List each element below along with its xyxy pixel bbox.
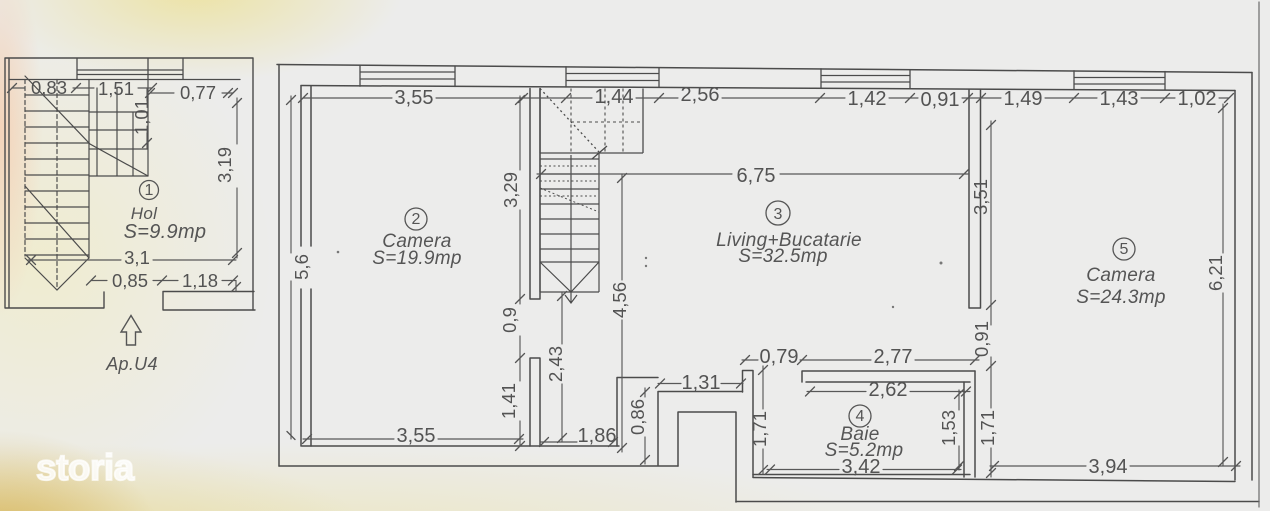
svg-text:1,71: 1,71 [749, 411, 770, 447]
svg-text:1,18: 1,18 [182, 270, 218, 291]
svg-text:3,94: 3,94 [1089, 456, 1128, 478]
svg-text:0,79: 0,79 [760, 346, 799, 368]
svg-text:S=24.3mp: S=24.3mp [1076, 287, 1166, 308]
svg-text:0,91: 0,91 [971, 321, 992, 357]
svg-text:Ap.U4: Ap.U4 [105, 354, 158, 374]
svg-text:2,43: 2,43 [545, 346, 566, 382]
svg-text:3,55: 3,55 [395, 87, 434, 109]
svg-text:0,85: 0,85 [112, 270, 148, 291]
svg-text:1,49: 1,49 [1004, 88, 1043, 110]
svg-text:1,43: 1,43 [1100, 88, 1139, 110]
svg-text:S=19.9mp: S=19.9mp [372, 248, 462, 269]
svg-text:5,6: 5,6 [291, 254, 312, 280]
svg-text:0,83: 0,83 [31, 77, 67, 98]
svg-text:1,31: 1,31 [682, 372, 721, 394]
svg-text:Camera: Camera [1086, 265, 1155, 286]
svg-text:0,9: 0,9 [499, 307, 520, 333]
svg-text:3,55: 3,55 [397, 425, 436, 447]
svg-text:2,77: 2,77 [874, 346, 913, 368]
svg-text:S=5.2mp: S=5.2mp [825, 440, 904, 461]
svg-text:1,02: 1,02 [1178, 88, 1217, 110]
svg-text:1: 1 [145, 182, 154, 199]
svg-text:0,77: 0,77 [180, 82, 216, 103]
svg-text:storia: storia [36, 447, 135, 488]
svg-text:1,53: 1,53 [938, 410, 959, 446]
svg-text:6,21: 6,21 [1205, 255, 1226, 291]
svg-text:3: 3 [774, 206, 783, 223]
svg-text:1,71: 1,71 [977, 410, 998, 446]
svg-text:0,91: 0,91 [921, 89, 960, 111]
svg-text:1,41: 1,41 [498, 383, 519, 419]
svg-text:2: 2 [412, 211, 421, 228]
svg-text:6,75: 6,75 [737, 165, 776, 187]
svg-text:2,62: 2,62 [869, 379, 908, 401]
svg-text:5: 5 [1120, 241, 1129, 258]
svg-text:1,01: 1,01 [131, 99, 152, 135]
svg-text:1,44: 1,44 [595, 86, 634, 108]
svg-text:1,86: 1,86 [578, 425, 617, 447]
svg-text:3,1: 3,1 [124, 247, 150, 268]
svg-text:1,51: 1,51 [98, 78, 134, 99]
svg-text:3,51: 3,51 [970, 179, 991, 215]
svg-text:S=9.9mp: S=9.9mp [124, 221, 207, 243]
svg-text:2,56: 2,56 [681, 84, 720, 106]
svg-text:4,56: 4,56 [609, 282, 630, 318]
svg-text:3,19: 3,19 [214, 147, 235, 183]
svg-text:S=32.5mp: S=32.5mp [738, 246, 828, 267]
svg-text:3,29: 3,29 [500, 172, 521, 208]
svg-text:0,86: 0,86 [627, 399, 648, 435]
svg-text:4: 4 [856, 408, 865, 425]
svg-text:1,42: 1,42 [848, 88, 887, 110]
